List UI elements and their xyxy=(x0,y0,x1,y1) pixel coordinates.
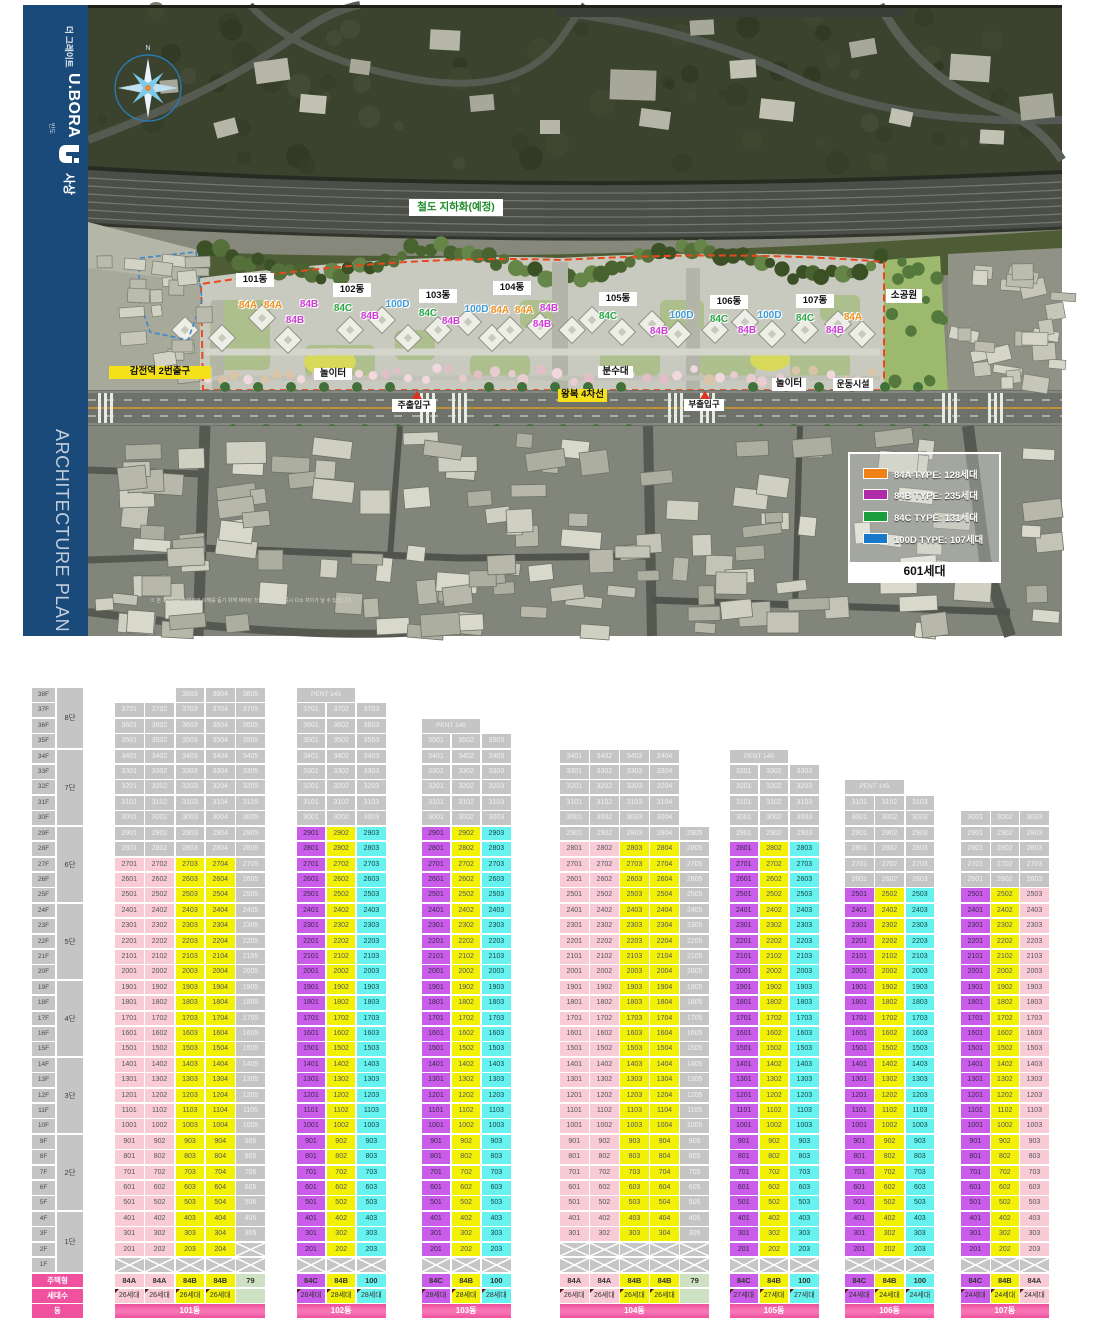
svg-text:N: N xyxy=(145,45,150,52)
